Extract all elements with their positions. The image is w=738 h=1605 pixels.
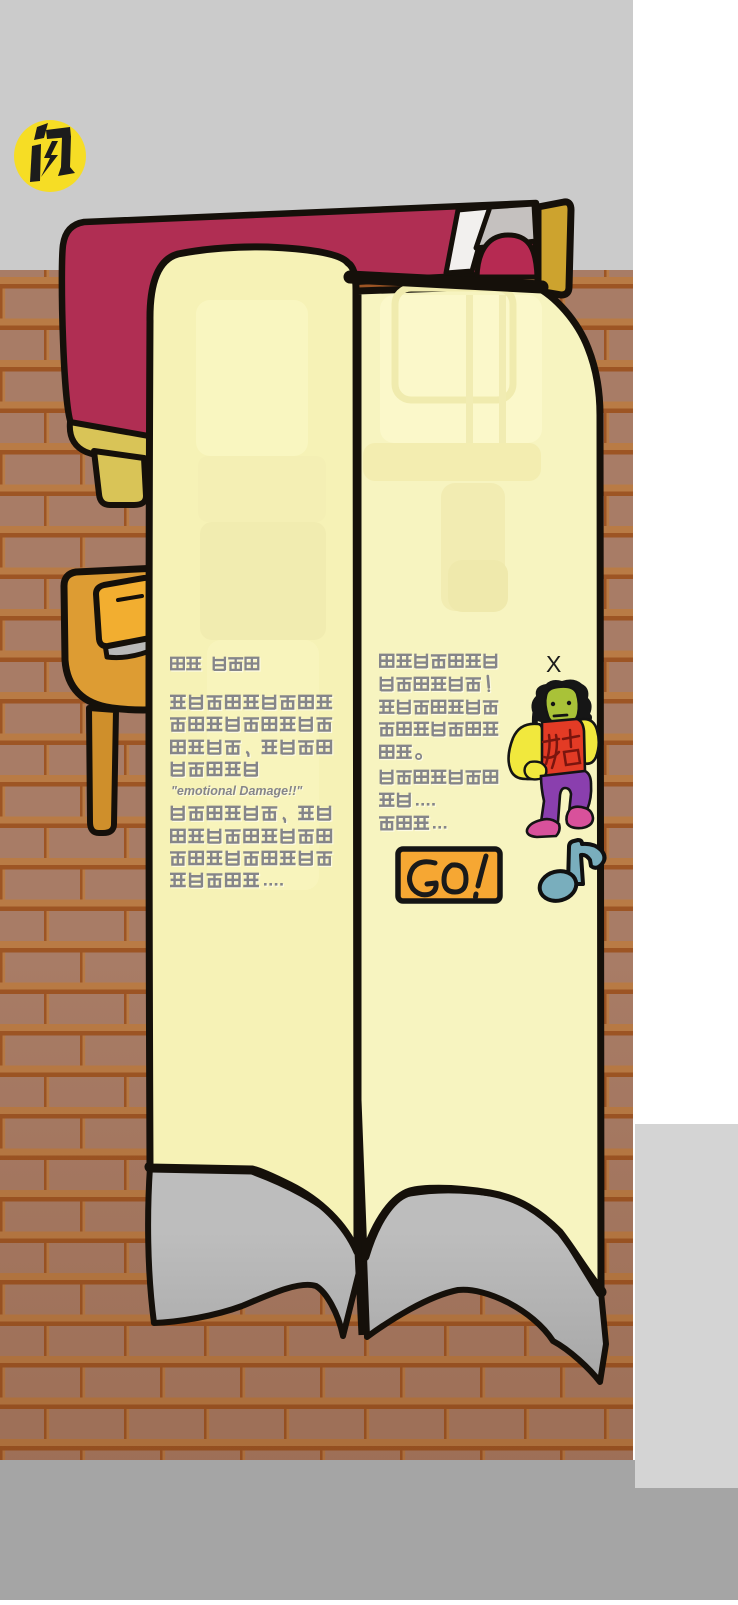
svg-text:X: X — [546, 651, 561, 677]
svg-text:"emotional Damage!!": "emotional Damage!!" — [171, 784, 303, 798]
